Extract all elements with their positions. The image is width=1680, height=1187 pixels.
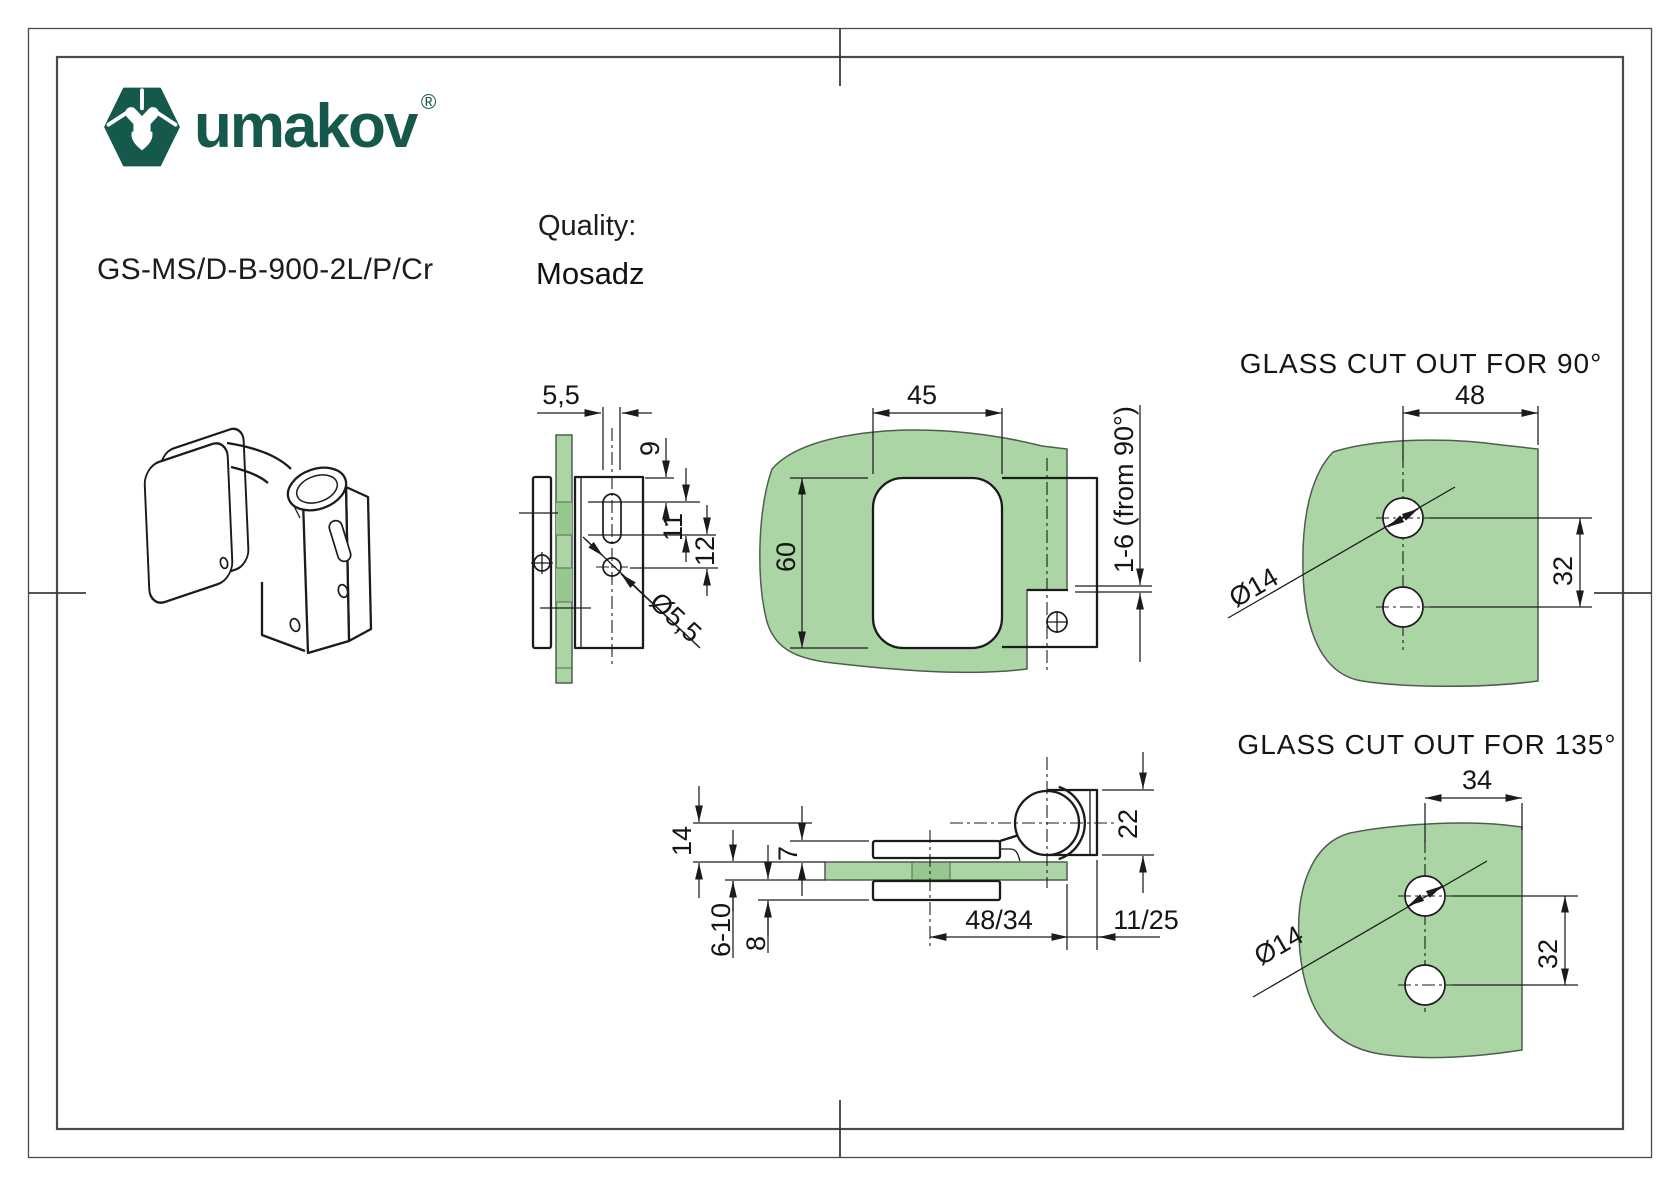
dim-glass-thickness: 6-10 xyxy=(706,903,736,957)
dim-back-plate: 8 xyxy=(741,936,771,951)
dim-width: 45 xyxy=(907,380,937,410)
side-section-view: 5,5 9 11 12 Ø5,5 xyxy=(519,380,720,683)
drawing-sheet: 5,5 9 11 12 Ø5,5 xyxy=(0,0,1680,1187)
brand-name-text: umakov xyxy=(194,92,416,161)
front-view: 45 60 1-6 (from 90°) xyxy=(760,380,1152,673)
clamp-front-plate xyxy=(873,478,1002,648)
dim-top-to-slot: 9 xyxy=(635,441,665,456)
dim-hole-spacing-90: 32 xyxy=(1548,556,1578,586)
glass-cutout-135-panel xyxy=(1299,823,1522,1057)
cutout-135-view: GLASS CUT OUT FOR 135° 34 32 Ø14 xyxy=(1237,729,1616,1057)
quality-label: Quality: xyxy=(538,210,636,243)
glass-edge-segment xyxy=(556,568,572,602)
dim-adjustment: 1-6 (from 90°) xyxy=(1109,406,1139,573)
hexagon-star-icon xyxy=(105,89,178,165)
glass-cutout-90-panel xyxy=(1303,440,1538,686)
quality-value: Mosadz xyxy=(536,256,645,292)
dim-slot-to-hole: 12 xyxy=(690,536,720,566)
dim-edge-distance-90: 48 xyxy=(1455,380,1485,410)
dim-plate-thickness: 7 xyxy=(773,846,803,861)
dim-glass-depth: 48/34 xyxy=(965,905,1033,935)
lower-clamp-plate xyxy=(873,881,1000,900)
umakov-logo-icon xyxy=(103,86,181,168)
dim-knuckle-width: 22 xyxy=(1113,809,1143,839)
dim-slot-length: 11 xyxy=(658,513,688,541)
product-code: GS-MS/D-B-900-2L/P/Cr xyxy=(97,253,433,287)
body-front-face xyxy=(303,487,349,653)
front-plate-3d xyxy=(144,439,233,607)
dim-height: 60 xyxy=(771,542,801,572)
dim-hole-spacing-135: 32 xyxy=(1533,939,1563,969)
brand-logo: umakov ® xyxy=(103,86,434,168)
dim-hole-diameter: Ø5,5 xyxy=(644,586,707,648)
notch-hole-3d xyxy=(289,617,301,632)
dim-hinge-offset: 14 xyxy=(667,826,697,856)
arm-edge-step xyxy=(1000,849,1020,861)
horizontal-section-view: 14 7 6-10 8 22 xyxy=(667,752,1179,958)
registered-trademark: ® xyxy=(421,92,436,113)
glass-edge-segment xyxy=(556,502,572,535)
isometric-view xyxy=(144,425,371,653)
brand-wordmark: umakov ® xyxy=(194,96,434,158)
dim-edge-offset: 11/25 xyxy=(1113,905,1179,935)
cutout-90-title: GLASS CUT OUT FOR 90° xyxy=(1240,348,1603,379)
dim-hole-diameter-90: Ø14 xyxy=(1224,562,1283,614)
bottom-notch-3d xyxy=(262,582,305,651)
dim-edge-distance-135: 34 xyxy=(1462,765,1492,795)
cutout-90-view: GLASS CUT OUT FOR 90° 48 32 Ø14 xyxy=(1224,348,1602,686)
glass-edge xyxy=(556,435,572,683)
glass-section-segment xyxy=(912,863,950,879)
technical-drawing-canvas: 5,5 9 11 12 Ø5,5 xyxy=(0,0,1680,1187)
body-side-face xyxy=(346,487,371,641)
upper-clamp-plate xyxy=(873,841,1000,858)
dim-plate-offset: 5,5 xyxy=(542,380,580,410)
cutout-135-title: GLASS CUT OUT FOR 135° xyxy=(1237,729,1616,760)
arm-edge-top xyxy=(1000,835,1019,841)
